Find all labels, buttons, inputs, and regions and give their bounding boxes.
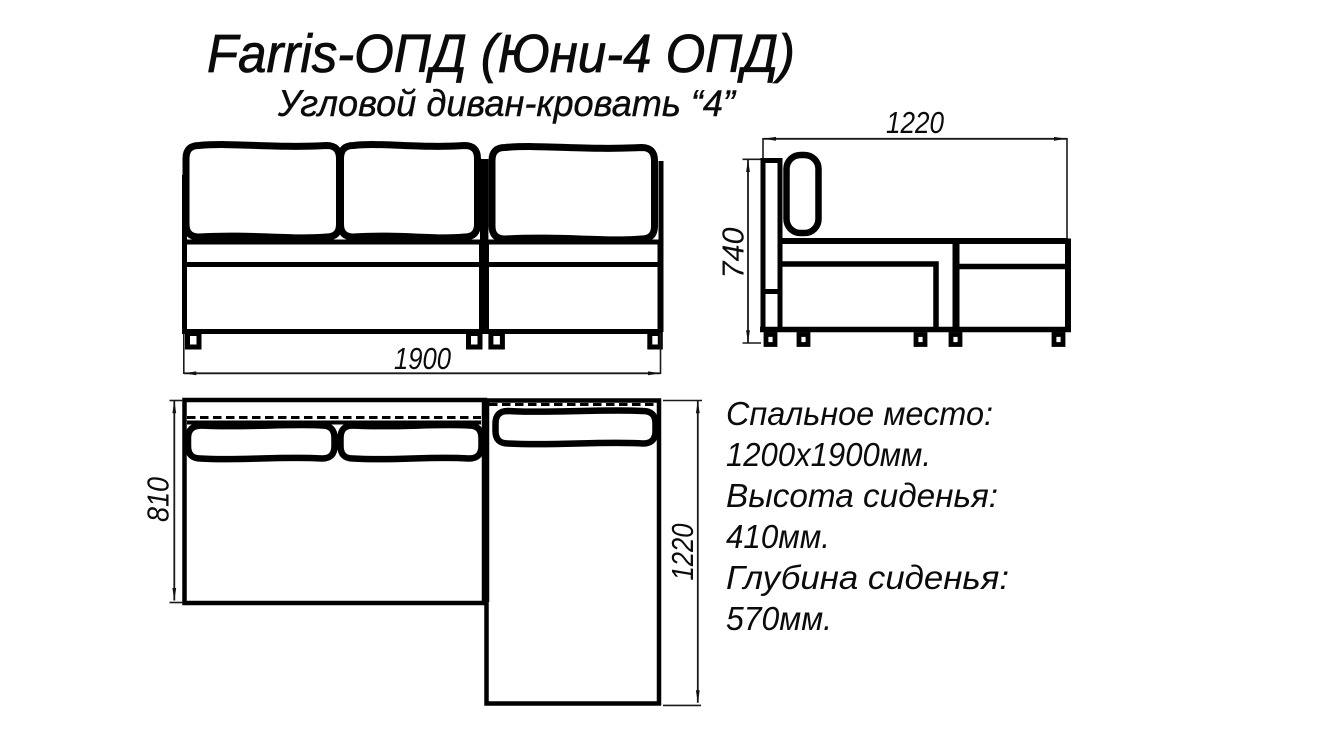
svg-text:570мм.: 570мм. xyxy=(726,600,832,637)
svg-text:Высота сиденья:: Высота сиденья: xyxy=(726,477,998,514)
svg-text:740: 740 xyxy=(716,228,751,279)
svg-text:1200х1900мм.: 1200х1900мм. xyxy=(726,436,931,473)
svg-text:Угловой диван-кровать “4”: Угловой диван-кровать “4” xyxy=(277,83,737,124)
svg-text:1220: 1220 xyxy=(886,105,944,140)
svg-text:1220: 1220 xyxy=(665,524,700,581)
svg-text:Спальное место:: Спальное место: xyxy=(726,395,993,432)
svg-text:1900: 1900 xyxy=(394,341,451,376)
svg-text:410мм.: 410мм. xyxy=(726,518,830,555)
svg-text:Глубина сиденья:: Глубина сиденья: xyxy=(726,559,1009,596)
svg-text:Farris-ОПД (Юни-4 ОПД): Farris-ОПД (Юни-4 ОПД) xyxy=(207,24,795,84)
svg-text:810: 810 xyxy=(141,477,176,522)
